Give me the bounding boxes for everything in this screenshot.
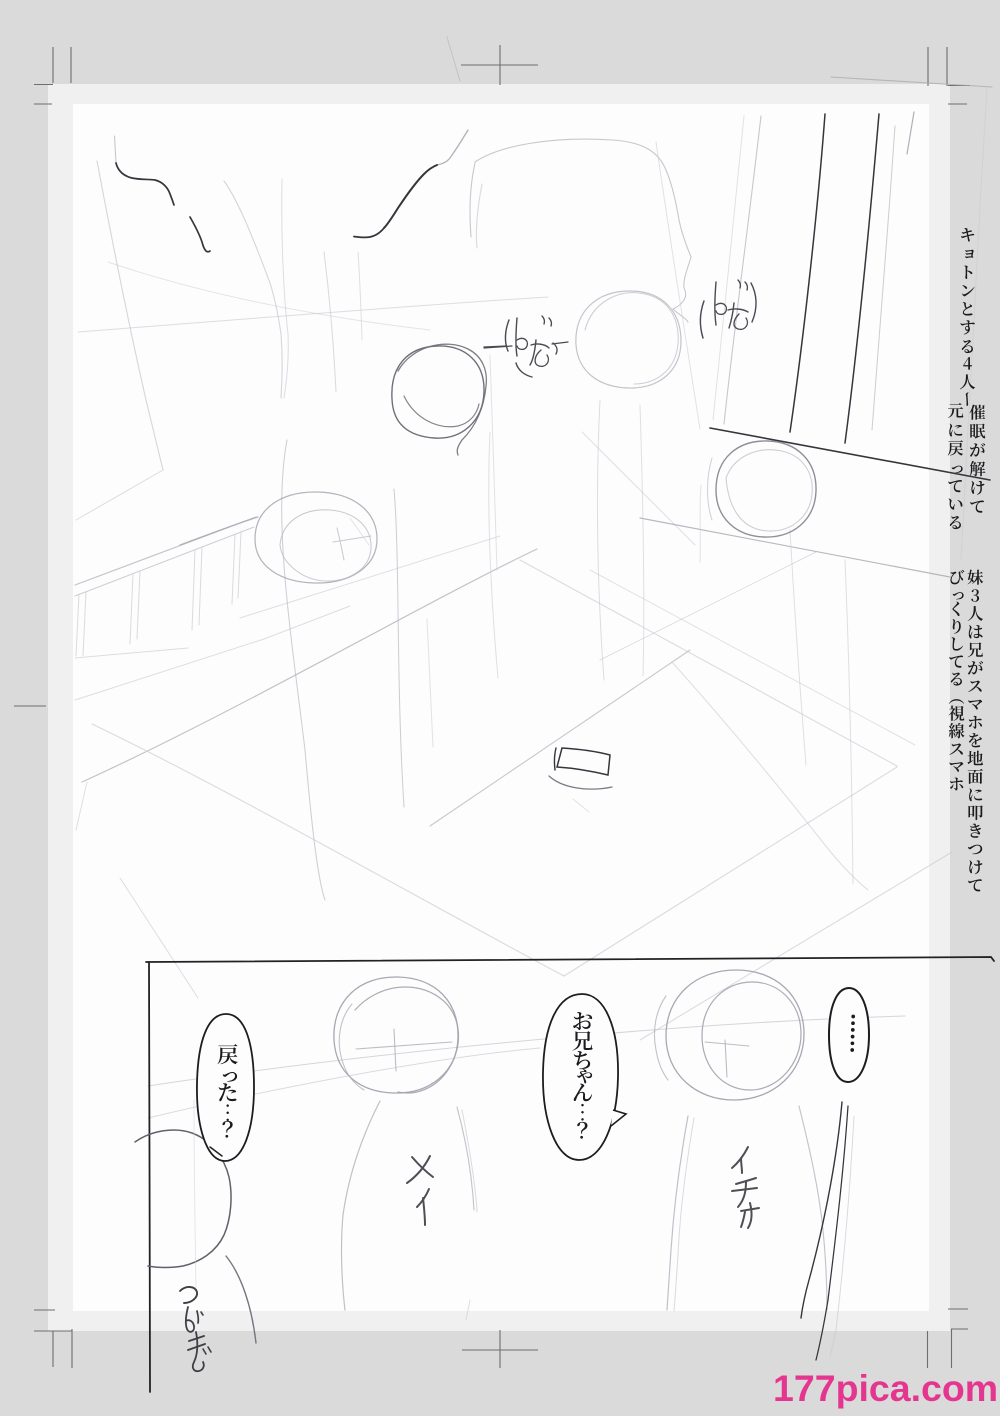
svg-text:177pica.com: 177pica.com <box>773 1367 998 1409</box>
